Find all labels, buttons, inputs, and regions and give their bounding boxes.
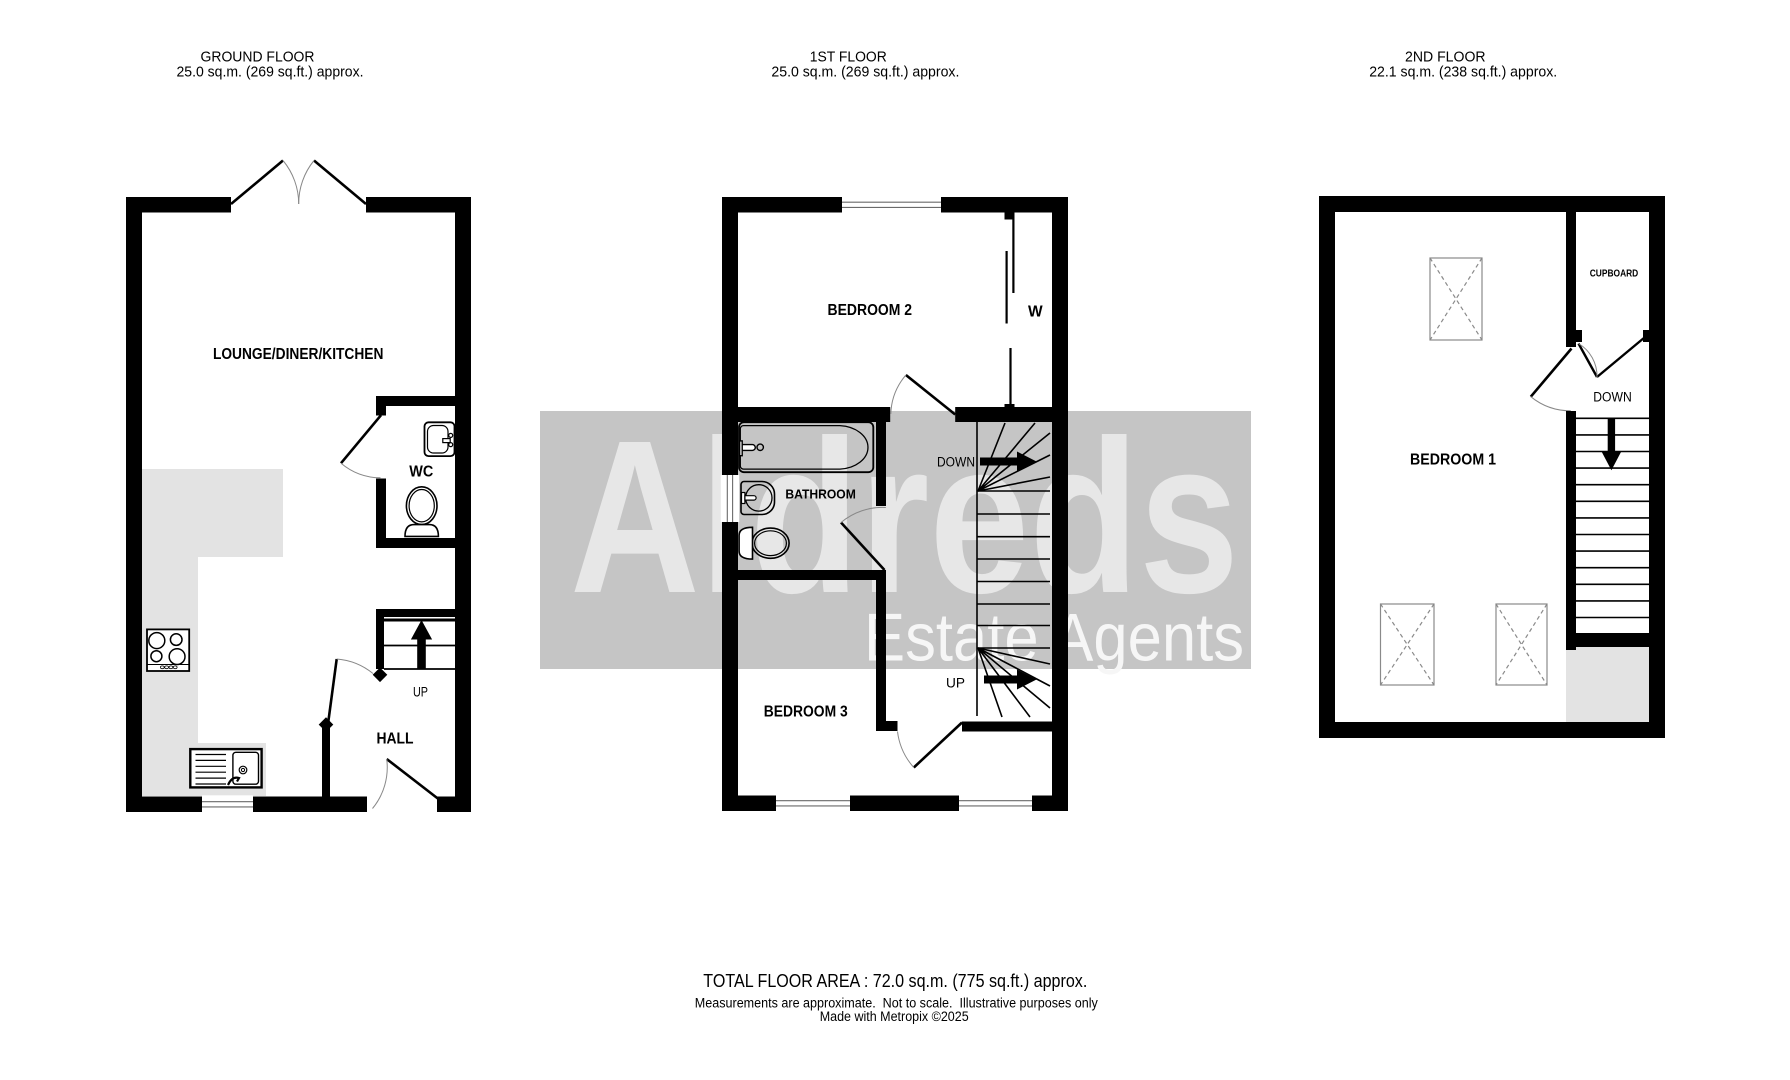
svg-text:2ND FLOOR: 2ND FLOOR (1405, 50, 1486, 66)
svg-text:DOWN: DOWN (1593, 390, 1632, 405)
svg-text:1ST FLOOR: 1ST FLOOR (810, 50, 887, 66)
svg-text:HALL: HALL (377, 731, 414, 748)
svg-text:DOWN: DOWN (937, 455, 975, 470)
svg-text:GROUND FLOOR: GROUND FLOOR (201, 50, 315, 66)
svg-text:W: W (1028, 303, 1043, 320)
svg-text:25.0 sq.m. (269 sq.ft.) approx: 25.0 sq.m. (269 sq.ft.) approx. (177, 64, 364, 80)
svg-text:BEDROOM 3: BEDROOM 3 (764, 703, 848, 720)
svg-text:25.0 sq.m. (269 sq.ft.) approx: 25.0 sq.m. (269 sq.ft.) approx. (771, 64, 959, 80)
svg-text:WC: WC (409, 464, 433, 481)
svg-text:BEDROOM 1: BEDROOM 1 (1410, 452, 1496, 469)
svg-text:BEDROOM 2: BEDROOM 2 (828, 302, 913, 319)
svg-text:CUPBOARD: CUPBOARD (1590, 269, 1639, 280)
svg-text:UP: UP (413, 684, 428, 700)
svg-text:TOTAL FLOOR AREA : 72.0 sq.m.: TOTAL FLOOR AREA : 72.0 sq.m. (775 sq.ft… (703, 970, 1087, 991)
svg-text:UP: UP (946, 675, 965, 690)
svg-text:LOUNGE/DINER/KITCHEN: LOUNGE/DINER/KITCHEN (213, 346, 384, 363)
svg-text:Made with Metropix ©2025: Made with Metropix ©2025 (820, 1009, 969, 1024)
svg-text:22.1 sq.m. (238 sq.ft.) approx: 22.1 sq.m. (238 sq.ft.) approx. (1369, 64, 1557, 80)
svg-text:BATHROOM: BATHROOM (785, 486, 856, 501)
